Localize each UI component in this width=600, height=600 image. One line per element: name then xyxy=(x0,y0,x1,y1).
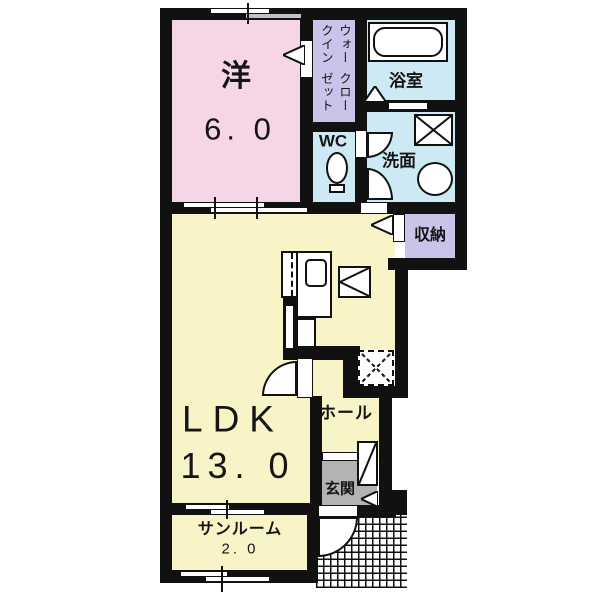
washroom-label: 洗面 xyxy=(382,153,416,170)
wall-closet-toilet xyxy=(313,122,355,132)
wall-bedroom-right xyxy=(300,8,313,214)
kitchen-counter-lower xyxy=(296,318,316,348)
ldk-size-label: 13. 0 xyxy=(180,448,295,484)
toilet-door-leaf xyxy=(355,130,367,158)
window-mid-sash2 xyxy=(210,207,308,213)
wall-hall-right xyxy=(379,398,392,517)
kitchen-dashed-line xyxy=(291,253,293,296)
wall-niche-bottom xyxy=(343,386,408,398)
walk-in-closet-label-line1: ウォークイン xyxy=(315,24,353,72)
washroom-door-leaf xyxy=(360,202,388,214)
sunroom-label: サンルーム xyxy=(198,522,283,538)
storage-door-leaf xyxy=(393,214,405,242)
storage-label: 収納 xyxy=(414,228,446,244)
window-mid-tick2 xyxy=(256,197,258,219)
toilet-bowl xyxy=(326,152,348,184)
entrance-opening-icon xyxy=(361,491,378,507)
hall-label: ホール xyxy=(319,405,373,422)
toilet-label: WC xyxy=(319,133,347,150)
wall-top xyxy=(160,8,467,20)
wall-porch-corner xyxy=(392,490,407,515)
storage-opening-icon xyxy=(371,215,393,235)
kitchen-stub-slot xyxy=(286,306,293,348)
window-sunroom-top-tick xyxy=(226,500,228,519)
ldk-door-leaf xyxy=(297,358,313,398)
bathtub-inner xyxy=(373,27,443,57)
shoe-cabinet xyxy=(357,441,378,486)
walk-in-closet-label-line2: クローゼット xyxy=(315,72,353,120)
bedroom-label: 洋 xyxy=(221,62,251,92)
ldk-label: LDK xyxy=(182,401,284,438)
bathroom-label: 浴室 xyxy=(389,73,423,90)
wall-sunroom-right xyxy=(307,503,318,583)
window-sunroom-top-sash2 xyxy=(210,509,265,515)
wall-left xyxy=(160,8,172,583)
walk-in-closet-label: ウォークイン クローゼット xyxy=(315,24,353,120)
outdoor-unit-space xyxy=(358,350,394,386)
bathtub xyxy=(368,22,448,62)
refrigerator-space xyxy=(338,266,371,298)
window-sunroom-bottom-tick xyxy=(221,566,223,592)
window-sunroom-bottom-sash2 xyxy=(205,576,270,582)
wall-ldk-right xyxy=(395,258,408,398)
bedroom-size-label: 6. 0 xyxy=(204,114,276,145)
washbasin xyxy=(417,162,453,196)
sunroom-size-label: 2. 0 xyxy=(221,542,258,557)
entrance-label: 玄関 xyxy=(325,482,355,497)
bath-door-leaf xyxy=(388,102,428,110)
window-top-sash2 xyxy=(245,13,302,19)
bath-door-icon xyxy=(364,86,386,102)
hall-room-neck xyxy=(313,360,343,398)
washing-machine xyxy=(414,114,453,146)
entrance-door-leaf xyxy=(318,505,358,517)
kitchen-sink xyxy=(305,259,327,287)
entrance-step xyxy=(322,452,358,461)
closet-opening-icon xyxy=(283,45,305,65)
floor-plan: 洋 6. 0 ウォークイン クローゼット 浴室 WC 洗面 収納 LDK 13.… xyxy=(0,0,600,600)
wall-right-upper xyxy=(455,8,467,270)
window-top-tick xyxy=(247,3,249,24)
window-mid-tick xyxy=(214,197,216,219)
toilet-tank xyxy=(329,184,345,193)
